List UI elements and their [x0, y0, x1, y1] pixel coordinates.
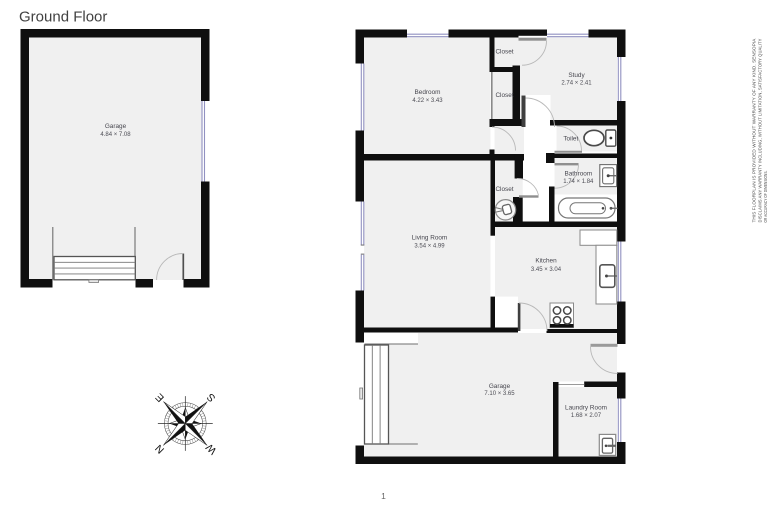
svg-text:Living Room: Living Room: [412, 234, 448, 241]
svg-text:Study: Study: [568, 72, 585, 79]
svg-text:THIS FLOORPLAN IS PROVIDED WIT: THIS FLOORPLAN IS PROVIDED WITHOUT WARRA…: [752, 38, 758, 223]
svg-text:3.45 × 3.04: 3.45 × 3.04: [531, 267, 562, 273]
svg-text:Toilet: Toilet: [563, 135, 578, 142]
svg-text:Bedroom: Bedroom: [415, 89, 441, 96]
svg-text:Ground Floor: Ground Floor: [19, 9, 107, 26]
svg-text:1.74 × 1.84: 1.74 × 1.84: [563, 179, 594, 185]
svg-text:Garage: Garage: [489, 383, 511, 390]
svg-text:Closet: Closet: [495, 92, 513, 99]
svg-text:4.84 × 7.08: 4.84 × 7.08: [100, 132, 131, 138]
svg-text:Laundry Room: Laundry Room: [565, 404, 607, 411]
svg-text:Garage: Garage: [105, 123, 127, 130]
svg-text:Closet: Closet: [495, 186, 513, 193]
svg-text:Kitchen: Kitchen: [535, 257, 557, 264]
svg-text:Closet: Closet: [495, 48, 513, 55]
svg-text:4.22 × 3.43: 4.22 × 3.43: [412, 98, 443, 104]
svg-text:Bathroom: Bathroom: [564, 170, 592, 177]
svg-text:1: 1: [381, 491, 386, 501]
svg-text:3.54 × 4.99: 3.54 × 4.99: [414, 243, 445, 249]
svg-text:1.68 × 2.07: 1.68 × 2.07: [571, 413, 602, 419]
svg-text:DISCLAIMS ANY WARRANTY INCLUDI: DISCLAIMS ANY WARRANTY INCLUDING, WITHOU…: [758, 38, 764, 223]
svg-text:2.74 × 2.41: 2.74 × 2.41: [561, 81, 592, 87]
svg-text:7.10 × 3.65: 7.10 × 3.65: [484, 391, 515, 397]
svg-text:OR ACCURACY OF DIMENSIONS.: OR ACCURACY OF DIMENSIONS.: [763, 171, 768, 223]
